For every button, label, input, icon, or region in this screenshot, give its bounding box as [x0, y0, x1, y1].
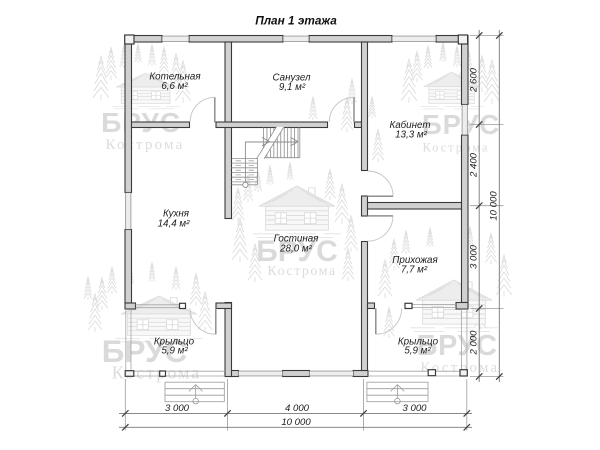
- svg-text:5,9 м²: 5,9 м²: [404, 346, 431, 357]
- svg-text:2 400: 2 400: [469, 152, 480, 178]
- svg-text:6,6 м²: 6,6 м²: [161, 81, 188, 92]
- svg-text:5,9 м²: 5,9 м²: [161, 346, 188, 357]
- svg-text:4 000: 4 000: [285, 403, 310, 414]
- svg-text:13,3 м²: 13,3 м²: [395, 130, 428, 141]
- svg-text:2 000: 2 000: [469, 330, 480, 356]
- svg-text:10 000: 10 000: [489, 191, 500, 221]
- svg-text:Кострома: Кострома: [267, 264, 336, 279]
- svg-text:3 000: 3 000: [165, 403, 190, 414]
- svg-text:14,4 м²: 14,4 м²: [158, 219, 191, 230]
- svg-text:Кострома: Кострома: [106, 137, 185, 153]
- svg-text:3 000: 3 000: [469, 244, 480, 269]
- svg-text:9,1 м²: 9,1 м²: [279, 82, 306, 93]
- svg-text:План 1 этажа: План 1 этажа: [255, 14, 337, 28]
- svg-text:3 000: 3 000: [402, 403, 427, 414]
- svg-text:28,0 м²: 28,0 м²: [279, 244, 313, 255]
- svg-text:2 600: 2 600: [469, 67, 480, 93]
- svg-text:7,7 м²: 7,7 м²: [401, 265, 428, 276]
- svg-text:10 000: 10 000: [281, 417, 311, 428]
